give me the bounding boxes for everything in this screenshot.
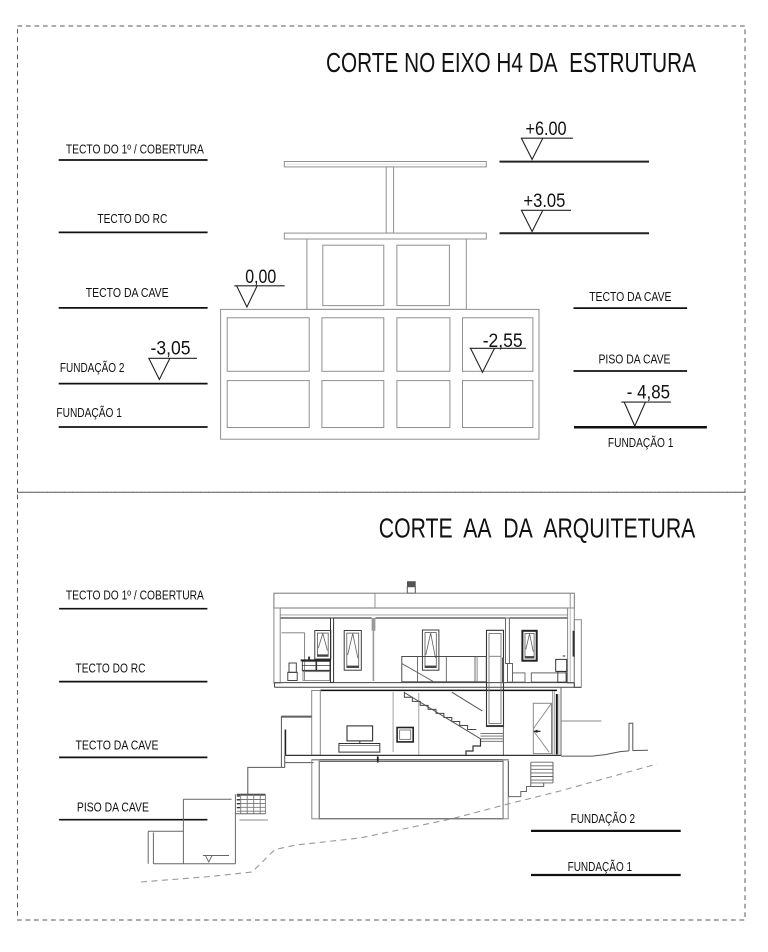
svg-text:+6.00: +6.00 [526,118,567,140]
svg-text:FUNDAÇÃO 1: FUNDAÇÃO 1 [608,435,674,450]
svg-text:FUNDAÇÃO 2: FUNDAÇÃO 2 [60,360,125,375]
svg-text:PISO DA CAVE: PISO DA CAVE [77,800,149,815]
svg-text:TECTO DO RC: TECTO DO RC [97,211,167,226]
svg-text:CORTE AA DA ARQUITETURA: CORTE AA DA ARQUITETURA [379,513,696,544]
svg-text:-3,05: -3,05 [151,338,191,360]
svg-text:TECTO DA CAVE: TECTO DA CAVE [589,289,672,304]
svg-text:PISO DA CAVE: PISO DA CAVE [599,352,671,367]
svg-text:FUNDAÇÃO 1: FUNDAÇÃO 1 [568,859,633,874]
svg-text:- 4,85: - 4,85 [627,382,670,404]
svg-text:0,00: 0,00 [245,266,276,288]
svg-text:CORTE NO EIXO H4 DA ESTRUTURA: CORTE NO EIXO H4 DA ESTRUTURA [326,47,696,78]
svg-text:FUNDAÇÃO 1: FUNDAÇÃO 1 [56,405,122,420]
svg-text:TECTO DO 1º / COBERTURA: TECTO DO 1º / COBERTURA [66,588,204,603]
svg-text:TECTO DA CAVE: TECTO DA CAVE [76,737,159,752]
svg-text:FUNDAÇÃO 2: FUNDAÇÃO 2 [571,811,636,826]
svg-text:TECTO DO RC: TECTO DO RC [76,660,146,675]
svg-text:TECTO DO 1º / COBERTURA: TECTO DO 1º / COBERTURA [66,141,204,156]
svg-text:+3.05: +3.05 [523,190,565,212]
svg-text:TECTO DA CAVE: TECTO DA CAVE [86,285,169,300]
